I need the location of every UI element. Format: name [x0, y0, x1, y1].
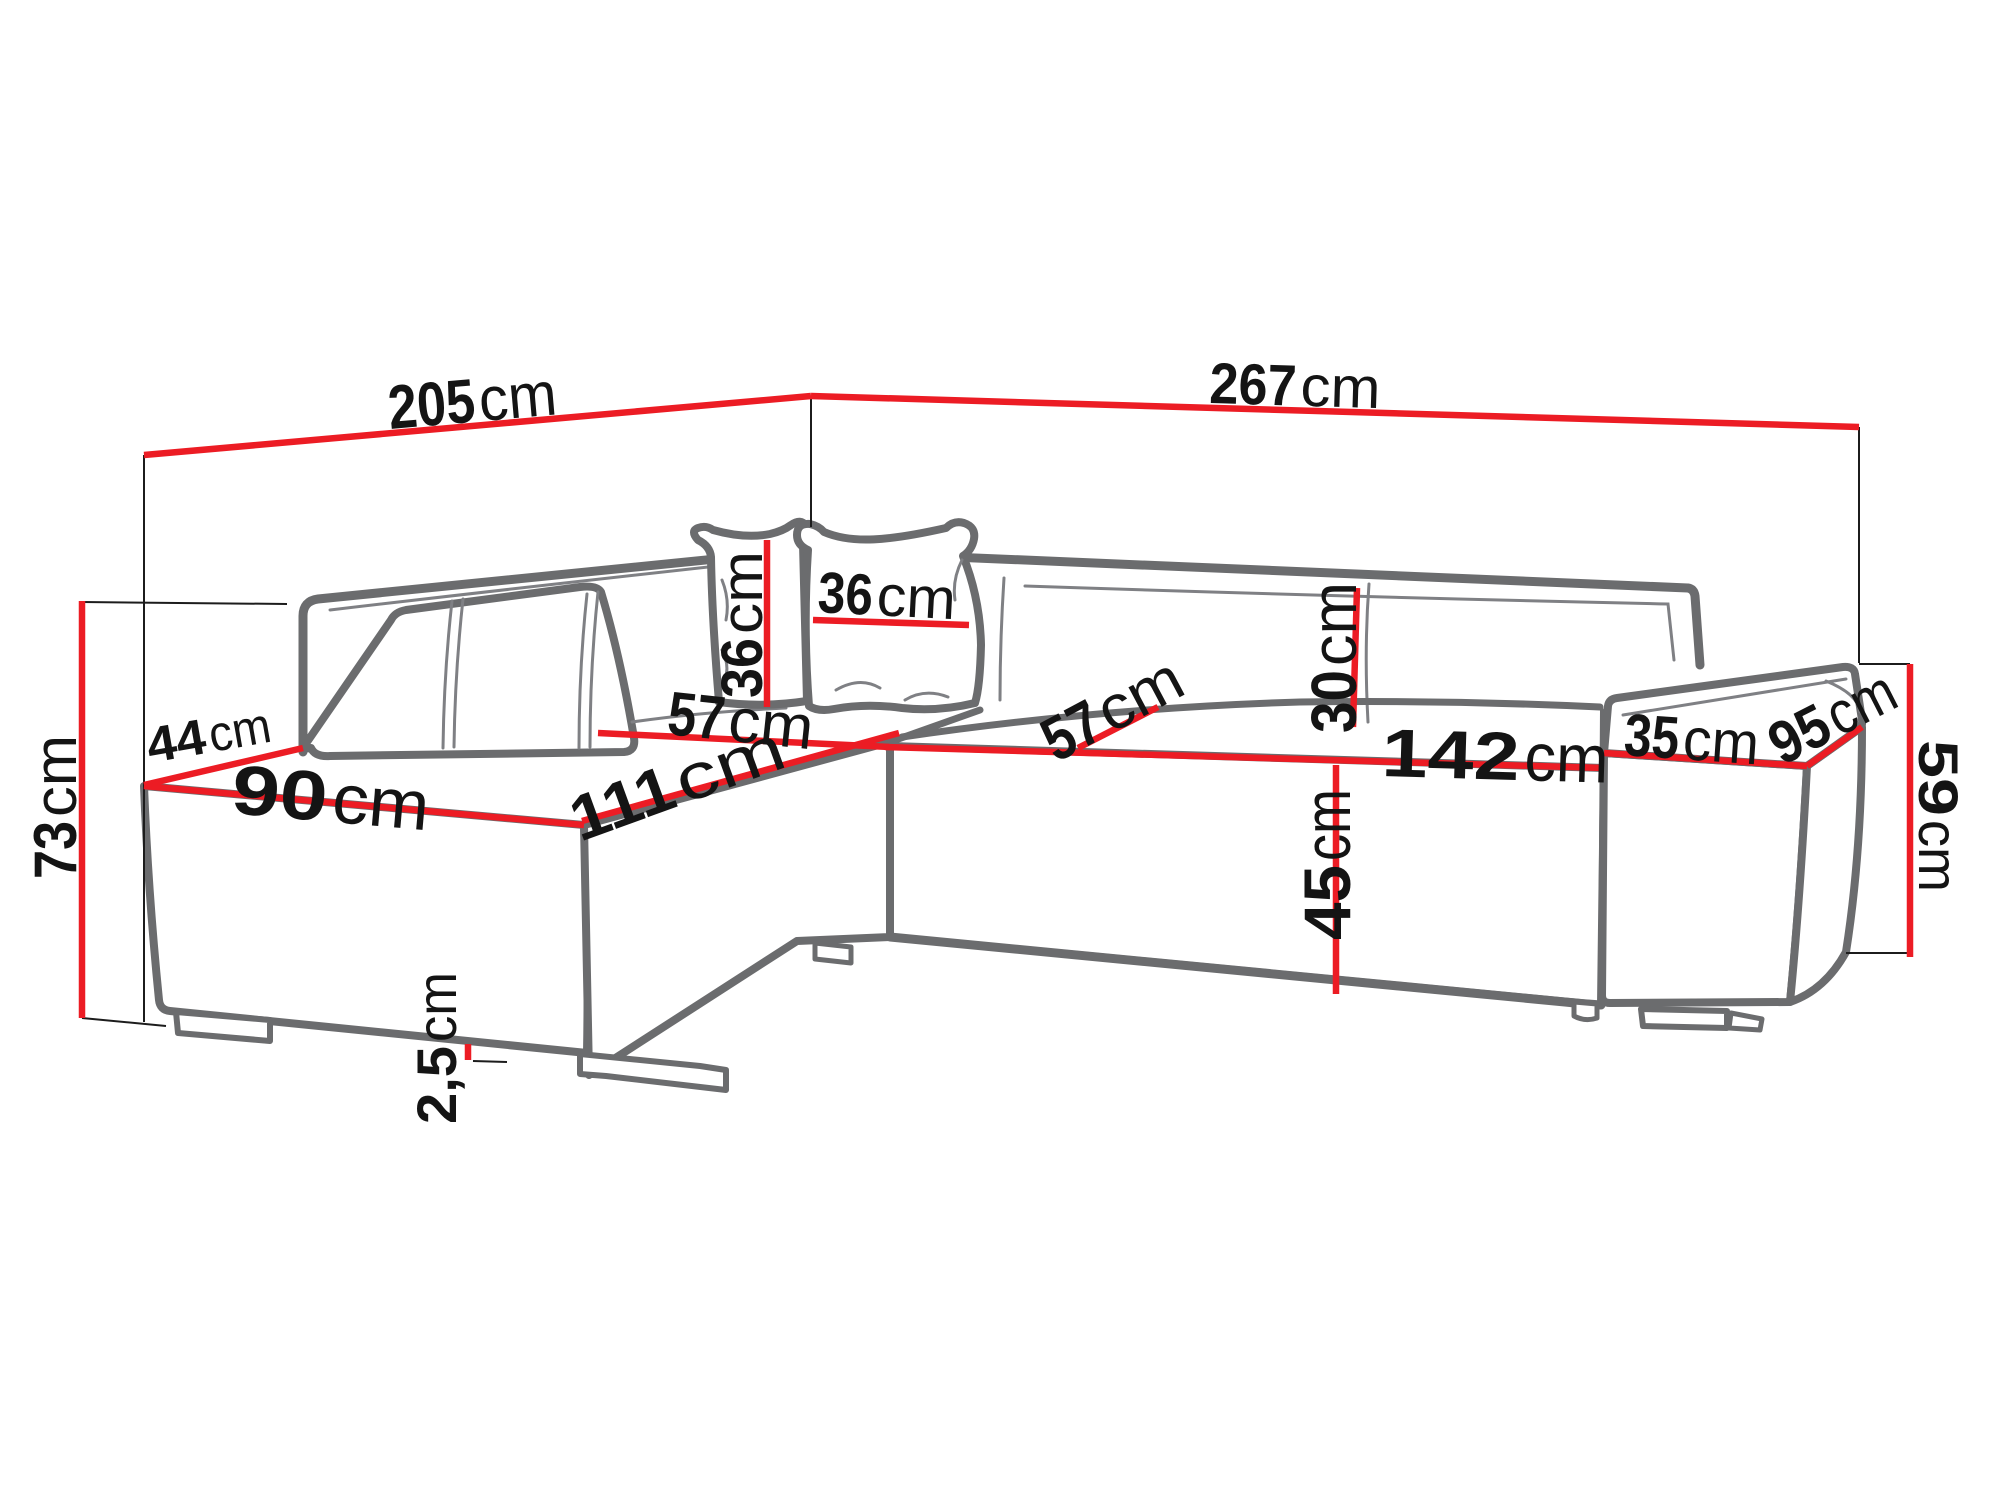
svg-text:142cm: 142cm: [1381, 715, 1610, 798]
svg-text:36cm: 36cm: [816, 560, 957, 632]
svg-text:59cm: 59cm: [1907, 740, 1970, 892]
svg-text:205cm: 205cm: [385, 359, 559, 442]
svg-text:36cm: 36cm: [710, 551, 775, 698]
svg-text:2,5cm: 2,5cm: [405, 972, 468, 1124]
svg-text:267cm: 267cm: [1209, 351, 1382, 421]
svg-text:73cm: 73cm: [22, 735, 89, 879]
svg-text:35cm: 35cm: [1622, 701, 1761, 777]
svg-text:30cm: 30cm: [1298, 582, 1370, 733]
